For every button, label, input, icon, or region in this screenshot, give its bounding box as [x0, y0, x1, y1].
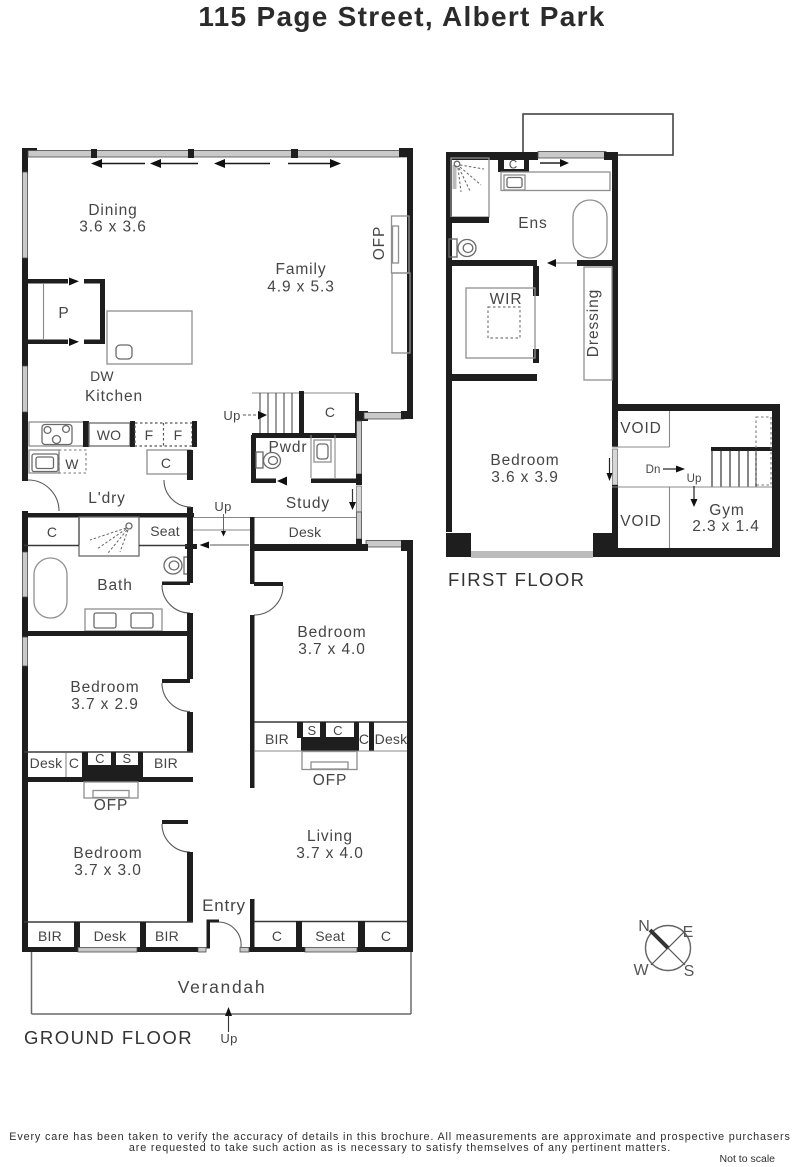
svg-text:Up: Up: [220, 1031, 237, 1046]
svg-text:Family: Family: [275, 261, 326, 278]
svg-text:BIR: BIR: [155, 928, 179, 944]
svg-text:Dressing: Dressing: [585, 289, 602, 357]
svg-text:Ens: Ens: [518, 215, 547, 232]
svg-text:C: C: [509, 160, 517, 172]
svg-text:Desk: Desk: [30, 755, 63, 771]
svg-text:OFP: OFP: [94, 797, 129, 814]
svg-text:N: N: [638, 918, 650, 935]
svg-text:WO: WO: [97, 427, 122, 443]
svg-text:Desk: Desk: [289, 524, 322, 540]
svg-text:E: E: [683, 924, 694, 941]
svg-text:S: S: [308, 723, 317, 738]
svg-text:W: W: [633, 962, 649, 979]
svg-text:C: C: [47, 524, 57, 540]
svg-text:VOID: VOID: [620, 513, 662, 530]
svg-text:Bedroom: Bedroom: [297, 624, 366, 641]
svg-text:WIR: WIR: [490, 291, 523, 308]
svg-text:3.7 x 4.0: 3.7 x 4.0: [296, 845, 364, 862]
svg-text:Seat: Seat: [315, 928, 345, 944]
svg-text:S: S: [123, 751, 132, 766]
svg-text:C: C: [359, 731, 369, 747]
svg-text:Living: Living: [307, 828, 353, 845]
svg-text:Verandah: Verandah: [178, 977, 267, 997]
svg-text:OFP: OFP: [371, 226, 388, 261]
svg-text:W: W: [65, 456, 79, 472]
svg-text:Up: Up: [687, 473, 702, 485]
svg-text:GROUND FLOOR: GROUND FLOOR: [24, 1027, 193, 1048]
svg-text:F: F: [145, 427, 154, 443]
svg-text:Not to scale: Not to scale: [720, 1153, 776, 1165]
svg-text:BIR: BIR: [265, 731, 289, 747]
svg-text:3.7 x 4.0: 3.7 x 4.0: [298, 641, 366, 658]
svg-text:DW: DW: [90, 368, 114, 384]
svg-text:3.7 x 2.9: 3.7 x 2.9: [71, 696, 139, 713]
svg-text:BIR: BIR: [154, 755, 178, 771]
svg-text:3.6 x 3.6: 3.6 x 3.6: [79, 219, 147, 236]
svg-text:are requested to take such act: are requested to take such action as is …: [129, 1142, 671, 1154]
svg-text:3.7 x 3.0: 3.7 x 3.0: [74, 862, 142, 879]
svg-text:Up: Up: [214, 499, 231, 514]
svg-text:Bath: Bath: [97, 577, 133, 594]
svg-text:C: C: [333, 723, 343, 738]
svg-text:VOID: VOID: [620, 420, 662, 437]
svg-text:C: C: [69, 755, 79, 771]
svg-text:L'dry: L'dry: [88, 490, 126, 507]
svg-text:Seat: Seat: [150, 523, 180, 539]
svg-text:Kitchen: Kitchen: [85, 388, 143, 405]
svg-text:P: P: [58, 305, 69, 322]
svg-text:Dining: Dining: [88, 202, 137, 219]
svg-text:3.6 x 3.9: 3.6 x 3.9: [491, 469, 559, 486]
svg-text:2.3 x 1.4: 2.3 x 1.4: [692, 518, 760, 535]
svg-text:C: C: [325, 404, 335, 420]
svg-text:OFP: OFP: [313, 772, 348, 789]
svg-text:Up: Up: [223, 408, 240, 423]
svg-text:Entry: Entry: [202, 896, 246, 915]
svg-text:Bedroom: Bedroom: [73, 845, 142, 862]
svg-text:4.9 x 5.3: 4.9 x 5.3: [267, 279, 335, 296]
svg-text:BIR: BIR: [38, 928, 62, 944]
svg-text:C: C: [161, 455, 171, 471]
svg-text:F: F: [174, 427, 183, 443]
svg-text:C: C: [272, 928, 282, 944]
svg-text:Bedroom: Bedroom: [490, 452, 559, 469]
svg-text:115 Page Street, Albert Park: 115 Page Street, Albert Park: [198, 1, 605, 32]
svg-text:C: C: [381, 928, 391, 944]
svg-text:Bedroom: Bedroom: [70, 679, 139, 696]
svg-text:Desk: Desk: [375, 731, 408, 747]
svg-text:C: C: [95, 751, 105, 766]
svg-text:Gym: Gym: [709, 502, 744, 519]
svg-text:Desk: Desk: [94, 928, 127, 944]
svg-text:Study: Study: [286, 495, 330, 512]
svg-text:Dn: Dn: [646, 464, 661, 476]
svg-text:FIRST FLOOR: FIRST FLOOR: [448, 569, 585, 590]
svg-text:S: S: [684, 963, 695, 980]
